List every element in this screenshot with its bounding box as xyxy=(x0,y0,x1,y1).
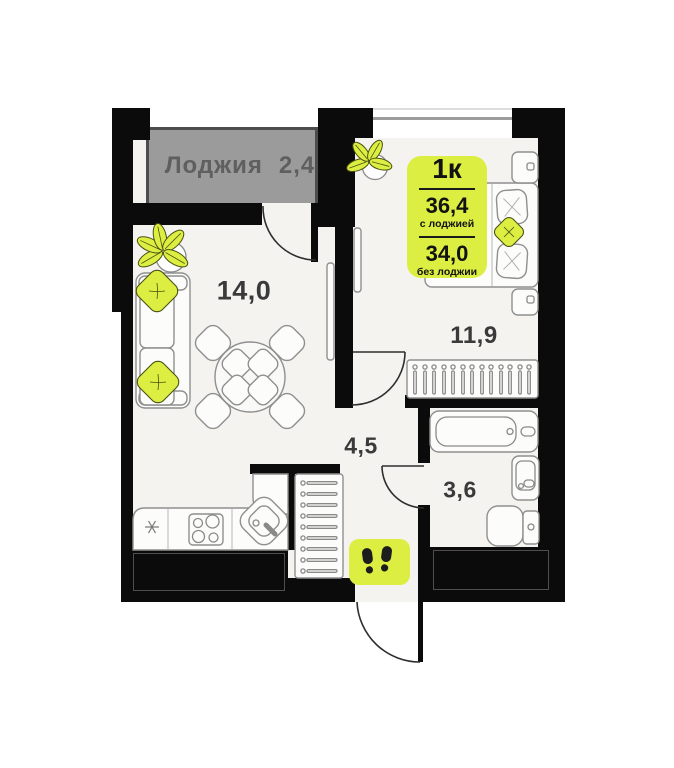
floor-loggia-doorway xyxy=(262,203,311,225)
floorplan-canvas: 1к 36,4 с лоджией 34,0 без лоджии Лоджия… xyxy=(0,0,674,768)
loggia-name: Лоджия xyxy=(165,152,263,180)
room-label-hall: 4,5 xyxy=(344,433,377,460)
apartment-info-badge: 1к 36,4 с лоджией 34,0 без лоджии xyxy=(407,156,487,278)
mass-inner-line xyxy=(133,553,285,591)
area-total: 36,4 xyxy=(426,194,469,218)
window-outer-edge xyxy=(373,108,512,110)
wall-corner-top-left xyxy=(112,108,150,140)
mass-kitchen-bottom xyxy=(130,550,288,594)
area-total-note: с лоджией xyxy=(420,218,474,231)
wall-divider-upper xyxy=(318,108,355,227)
wall-bath-left-upper xyxy=(418,408,430,463)
wall-kitchen-t-horizontal xyxy=(250,464,340,474)
room-label-bath: 3,6 xyxy=(443,477,476,504)
mass-bath-bottom xyxy=(430,547,552,593)
wall-kitchen-t-vertical xyxy=(284,474,295,550)
area-living-note: без лоджии xyxy=(417,266,477,279)
rooms-count: 1к xyxy=(432,155,462,183)
entrance-badge xyxy=(349,539,410,585)
wall-bedroom-bath xyxy=(405,395,540,408)
mass-inner-line xyxy=(433,550,549,590)
area-living: 34,0 xyxy=(426,242,469,266)
badge-divider xyxy=(419,188,475,190)
wall-divider-lower xyxy=(335,227,353,408)
loggia-label: Лоджия 2,4 xyxy=(165,152,316,180)
wall-loggia-door-leaf xyxy=(311,203,318,262)
loggia-area: 2,4 xyxy=(279,152,315,180)
badge-divider xyxy=(419,236,475,238)
wall-right xyxy=(538,108,565,602)
room-label-bedroom: 11,9 xyxy=(450,322,497,350)
door-entrance xyxy=(357,600,423,662)
wall-loggia-bottom xyxy=(133,203,262,225)
room-label-living: 14,0 xyxy=(217,276,272,307)
window-bedroom xyxy=(373,117,512,120)
